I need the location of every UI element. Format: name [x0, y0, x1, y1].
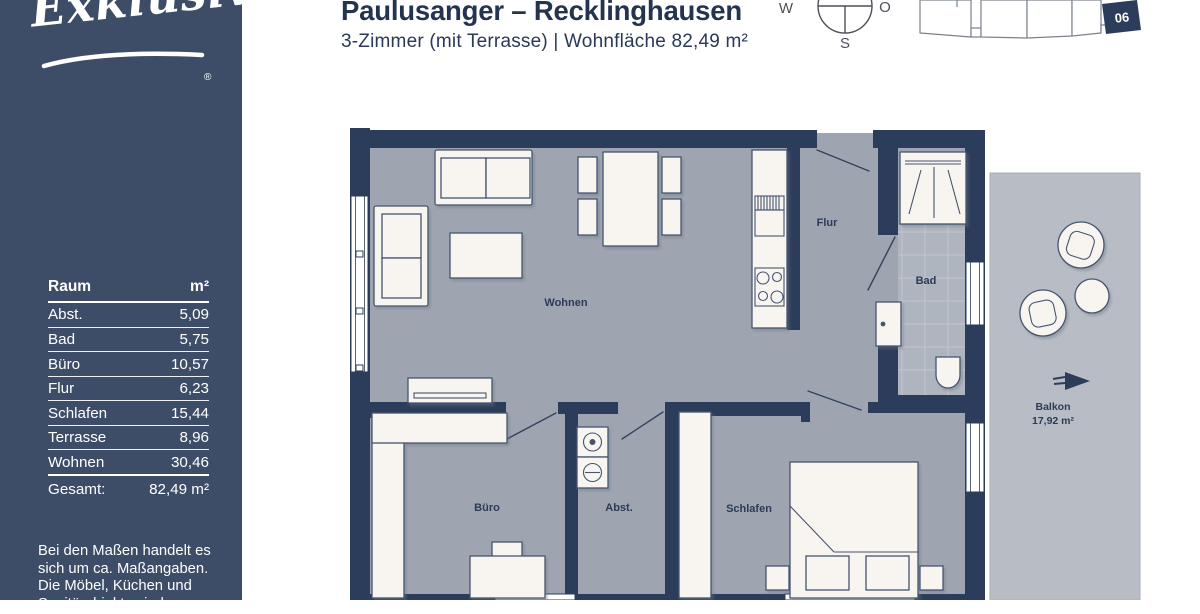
label-balkon: Balkon — [1035, 401, 1070, 413]
table-total-row: Gesamt: 82,49 m² — [48, 476, 209, 498]
table-row: Flur 6,23 — [48, 377, 209, 402]
keyplan-notch — [971, 28, 981, 37]
brand-logo: Exklusiv ® — [0, 0, 242, 100]
sidebar: Exklusiv ® Raum m² Abst. 5,09 Bad 5,75 B… — [0, 0, 242, 600]
label-buero: Büro — [474, 502, 500, 514]
room-name: Terrasse — [48, 429, 106, 446]
kitchen-counter — [752, 150, 787, 328]
compass-rose: W O S — [775, 0, 905, 55]
window-bedroom — [966, 423, 984, 492]
label-schlafen: Schlafen — [726, 503, 772, 515]
nightstand — [766, 566, 789, 590]
armchair-sofa — [374, 206, 428, 306]
disclaimer-line: sich um ca. Maßangaben. — [38, 561, 238, 579]
bath-cabinet — [876, 302, 901, 346]
keyplan-unit — [1027, 0, 1072, 38]
dryer-icon — [577, 427, 608, 457]
coffee-table — [450, 233, 522, 278]
room-name: Schlafen — [48, 405, 107, 422]
disclaimer-line: Sanitärobjekte sind — [38, 596, 238, 614]
label-bad: Bad — [916, 275, 937, 287]
room-area-table: Raum m² Abst. 5,09 Bad 5,75 Büro 10,57 F… — [48, 278, 209, 498]
label-flur: Flur — [817, 217, 838, 229]
disclaimer-line: Bei den Maßen handelt es — [38, 543, 238, 561]
total-value: 82,49 m² — [149, 481, 209, 498]
shower — [900, 152, 966, 224]
table-row: Büro 10,57 — [48, 352, 209, 377]
nightstand — [920, 566, 943, 590]
keyplan-unit — [920, 0, 971, 37]
room-area: 5,75 — [179, 331, 209, 348]
room-name: Büro — [48, 356, 80, 373]
room-name: Bad — [48, 331, 75, 348]
col-room: Raum — [48, 278, 91, 296]
table-header: Raum m² — [48, 278, 209, 303]
page-title: Paulusanger – Recklinghausen — [341, 0, 748, 26]
keyplan-unit — [981, 0, 1027, 38]
disclaimer-text: Bei den Maßen handelt es sich um ca. Maß… — [38, 543, 238, 614]
room-name: Wohnen — [48, 454, 104, 471]
dining-table-set — [578, 152, 681, 246]
disclaimer-line: Die Möbel, Küchen und — [38, 578, 238, 596]
table-row: Bad 5,75 — [48, 328, 209, 353]
sofa — [435, 150, 532, 205]
compass-west: W — [779, 0, 794, 17]
label-abstell: Abst. — [605, 502, 633, 514]
sideboard — [408, 378, 492, 403]
compass-east: O — [879, 0, 891, 16]
col-area: m² — [190, 278, 209, 296]
balcony-chair — [1020, 290, 1066, 336]
table-row: Schlafen 15,44 — [48, 401, 209, 426]
room-area: 8,96 — [179, 429, 209, 446]
label-balkon-area: 17,92 m² — [1032, 415, 1075, 427]
floor-plan: Wohnen Flur Bad Büro Abst. Schlafen Balk… — [330, 105, 1160, 600]
unit-number-badge: 06 — [1114, 9, 1130, 25]
double-bed — [790, 462, 918, 598]
page-header: Paulusanger – Recklinghausen 3-Zimmer (m… — [341, 0, 748, 53]
room-area: 10,57 — [171, 356, 209, 373]
washing-machine-icon — [577, 457, 608, 488]
room-area: 15,44 — [171, 405, 209, 422]
room-name: Abst. — [48, 306, 83, 323]
keyplan: 06 — [905, 0, 1155, 58]
entrance-opening — [817, 133, 873, 148]
brand-logo-text: Exklusiv — [28, 0, 256, 38]
balcony-table — [1075, 279, 1109, 313]
registered-mark: ® — [204, 72, 211, 83]
room-area: 30,46 — [171, 454, 209, 471]
table-row: Abst. 5,09 — [48, 303, 209, 328]
table-row: Wohnen 30,46 — [48, 450, 209, 476]
toilet — [936, 357, 960, 388]
keyplan-unit — [1072, 0, 1101, 36]
window-left — [351, 196, 368, 372]
room-area: 6,23 — [179, 380, 209, 397]
office-counter — [372, 413, 507, 443]
label-wohnen: Wohnen — [544, 297, 587, 309]
logo-swoosh-icon — [40, 46, 210, 72]
wardrobe — [679, 412, 711, 598]
balcony-chair — [1058, 222, 1104, 268]
page-subtitle: 3-Zimmer (mit Terrasse) | Wohnfläche 82,… — [341, 31, 748, 53]
total-label: Gesamt: — [48, 481, 105, 498]
room-area: 5,09 — [179, 306, 209, 323]
table-row: Terrasse 8,96 — [48, 426, 209, 451]
compass-south: S — [840, 35, 850, 52]
window-bath — [966, 262, 984, 325]
room-name: Flur — [48, 380, 74, 397]
